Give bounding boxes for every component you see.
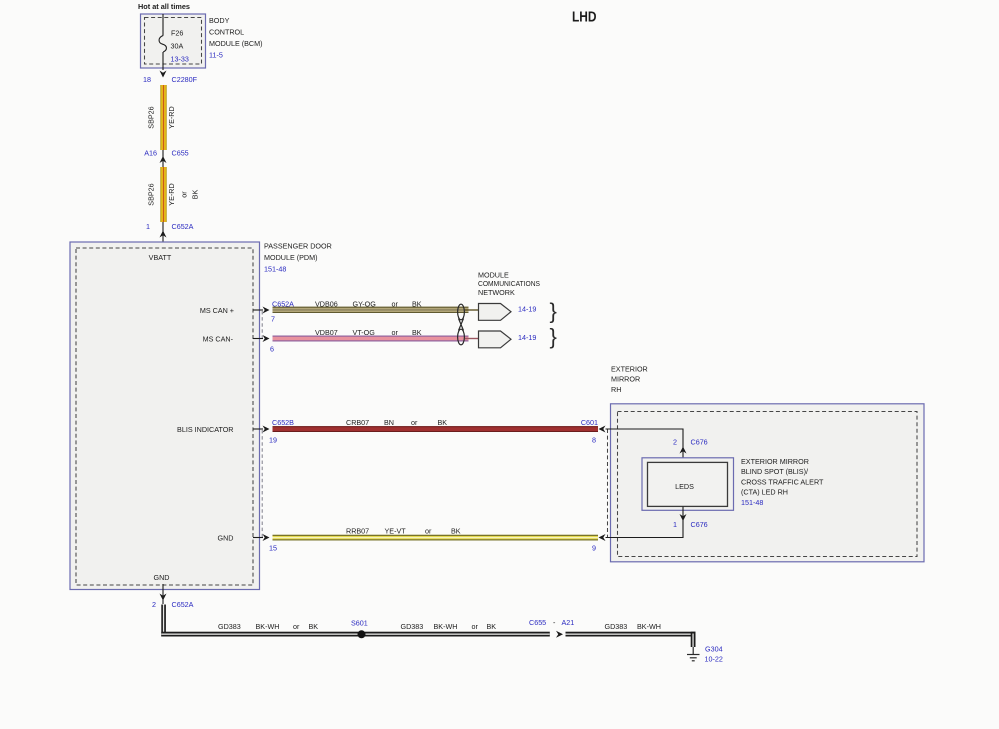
svg-text:9: 9: [592, 544, 596, 553]
svg-text:LEDS: LEDS: [675, 482, 694, 491]
svg-text:CONTROL: CONTROL: [209, 28, 244, 37]
svg-text:RH: RH: [611, 385, 621, 394]
svg-text:6: 6: [270, 345, 274, 354]
svg-text:or: or: [472, 622, 479, 631]
svg-text:C655: C655: [172, 149, 189, 158]
svg-text:7: 7: [271, 315, 275, 324]
svg-text:G304: G304: [705, 645, 723, 654]
svg-text:or: or: [425, 527, 432, 536]
svg-text:15: 15: [269, 544, 277, 553]
svg-text:BLIS INDICATOR: BLIS INDICATOR: [177, 425, 233, 434]
svg-text:COMMUNICATIONS: COMMUNICATIONS: [478, 279, 540, 288]
svg-text:151-48: 151-48: [264, 265, 286, 274]
svg-text:MS CAN +: MS CAN +: [200, 306, 234, 315]
svg-text:BK: BK: [487, 622, 497, 631]
svg-text:VT-OG: VT-OG: [353, 328, 376, 337]
svg-text:C676: C676: [691, 520, 708, 529]
svg-text:BK-WH: BK-WH: [434, 622, 458, 631]
svg-text:EXTERIOR MIRROR: EXTERIOR MIRROR: [741, 457, 809, 466]
svg-text:or: or: [180, 191, 189, 198]
svg-text:SBP26: SBP26: [147, 183, 156, 205]
svg-text:11-5: 11-5: [209, 51, 223, 60]
svg-text:BK: BK: [412, 299, 422, 308]
svg-text:YE-RD: YE-RD: [167, 183, 176, 205]
svg-text:C655: C655: [529, 618, 546, 627]
svg-text:BODY: BODY: [209, 16, 230, 25]
svg-text:or: or: [392, 328, 399, 337]
svg-text:BK-WH: BK-WH: [637, 622, 661, 631]
svg-text:BN: BN: [384, 418, 394, 427]
svg-text:NETWORK: NETWORK: [478, 288, 515, 297]
svg-text:C652A: C652A: [172, 222, 194, 231]
svg-text:1: 1: [673, 520, 677, 529]
svg-text:S601: S601: [351, 619, 368, 628]
svg-text:1: 1: [146, 222, 150, 231]
svg-text:RRB07: RRB07: [346, 527, 369, 536]
svg-text:}: }: [550, 324, 557, 349]
svg-text:LHD: LHD: [572, 9, 597, 26]
svg-text:14-19: 14-19: [518, 333, 536, 342]
svg-text:Hot at all times: Hot at all times: [138, 2, 190, 11]
svg-text:13-33: 13-33: [171, 55, 189, 64]
svg-text:C601: C601: [581, 418, 598, 427]
svg-text:2: 2: [152, 600, 156, 609]
svg-text:CRB07: CRB07: [346, 418, 369, 427]
svg-text:PASSENGER DOOR: PASSENGER DOOR: [264, 242, 332, 251]
svg-text:C2280F: C2280F: [172, 75, 198, 84]
svg-text:A21: A21: [562, 618, 575, 627]
svg-text:151-48: 151-48: [741, 498, 763, 507]
svg-text:18: 18: [143, 75, 151, 84]
svg-text:BK-WH: BK-WH: [256, 622, 280, 631]
svg-text:GD383: GD383: [401, 622, 424, 631]
svg-text:GD383: GD383: [218, 622, 241, 631]
svg-text:BK: BK: [451, 527, 461, 536]
svg-text:10-22: 10-22: [705, 655, 723, 664]
svg-text:or: or: [411, 418, 418, 427]
svg-text:or: or: [392, 299, 399, 308]
svg-text:GD383: GD383: [605, 622, 628, 631]
svg-text:30A: 30A: [171, 42, 184, 51]
svg-text:14-19: 14-19: [518, 305, 536, 314]
svg-text:MODULE: MODULE: [478, 271, 509, 280]
svg-text:GND: GND: [218, 534, 234, 543]
svg-text:EXTERIOR: EXTERIOR: [611, 365, 648, 374]
svg-text:MODULE (BCM): MODULE (BCM): [209, 39, 263, 48]
svg-text:C652A: C652A: [272, 299, 294, 308]
svg-text:VDB07: VDB07: [315, 328, 338, 337]
svg-text:VBATT: VBATT: [149, 253, 172, 262]
svg-text:GND: GND: [154, 573, 170, 582]
svg-text:(CTA) LED RH: (CTA) LED RH: [741, 488, 788, 497]
svg-text:or: or: [293, 622, 300, 631]
svg-text:MODULE (PDM): MODULE (PDM): [264, 253, 318, 262]
svg-text:19: 19: [269, 436, 277, 445]
svg-text:MIRROR: MIRROR: [611, 375, 640, 384]
svg-text:2: 2: [673, 438, 677, 447]
svg-text:C676: C676: [691, 438, 708, 447]
svg-text:F26: F26: [171, 29, 183, 38]
svg-text:YE-RD: YE-RD: [167, 106, 176, 128]
svg-text:SBP26: SBP26: [147, 106, 156, 128]
svg-text:BLIND SPOT (BLIS)/: BLIND SPOT (BLIS)/: [741, 467, 808, 476]
svg-text:}: }: [550, 299, 557, 324]
svg-text:BK: BK: [191, 190, 200, 200]
svg-text:BK: BK: [412, 328, 422, 337]
svg-text:MS CAN-: MS CAN-: [203, 335, 234, 344]
svg-text:VDB06: VDB06: [315, 299, 338, 308]
svg-text:BK: BK: [309, 622, 319, 631]
svg-text:A16: A16: [144, 149, 157, 158]
svg-text:C652A: C652A: [172, 600, 194, 609]
svg-text:C652B: C652B: [272, 418, 294, 427]
svg-text:YE-VT: YE-VT: [385, 527, 407, 536]
svg-text:BK: BK: [438, 418, 448, 427]
svg-text:GY-OG: GY-OG: [353, 299, 377, 308]
svg-text:CROSS TRAFFIC ALERT: CROSS TRAFFIC ALERT: [741, 477, 824, 486]
svg-text:8: 8: [592, 436, 596, 445]
